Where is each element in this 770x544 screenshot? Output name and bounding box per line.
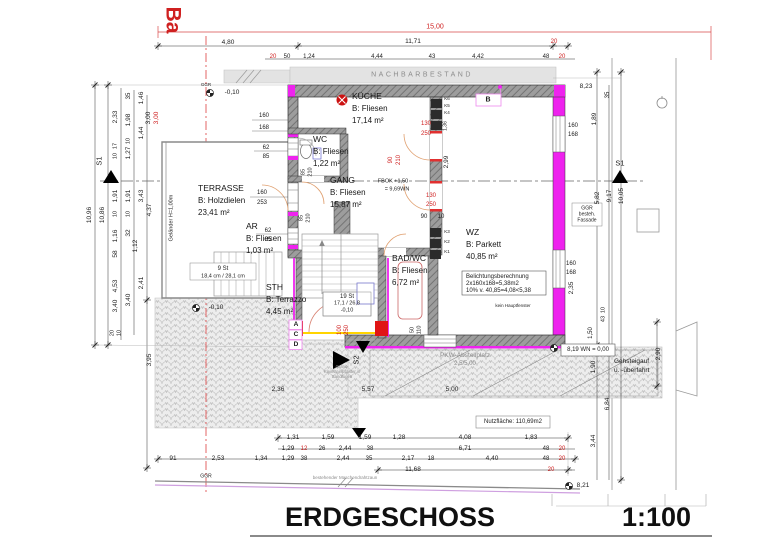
dim-label: 2,41: [139, 277, 146, 290]
dim-label: K3: [444, 230, 450, 235]
dim-label: 4,37: [147, 204, 154, 217]
dim-label: 5,00: [446, 387, 459, 394]
dim-label: 10,05: [619, 188, 626, 204]
dim-label: 168: [259, 125, 269, 131]
dim-label: 250: [344, 325, 350, 335]
dim-label: 50: [284, 54, 291, 60]
dim-label: 91: [169, 456, 176, 463]
dim-label: 168: [566, 270, 576, 276]
dim-label: 3,00: [154, 112, 161, 125]
dim-label: 11,71: [405, 39, 421, 46]
ggr-label: GGR: [200, 475, 211, 480]
dim-label: 10: [126, 138, 132, 144]
section-marker-label: S1: [95, 156, 103, 165]
room-label-kche: KÜCHEB: Fliesen17,14 m²: [352, 90, 388, 128]
dim-label: 38: [301, 456, 308, 462]
dim-label: 10: [126, 211, 132, 217]
dim-label: 10: [601, 307, 607, 313]
dim-label: 2,17: [402, 456, 415, 463]
dim-label: 1,83: [525, 435, 538, 442]
room-name: BAD/WC: [392, 252, 428, 265]
room-finish: B: Terrazzo: [266, 294, 306, 307]
section-marker-label: S2: [352, 355, 360, 364]
dim-label: 85: [263, 154, 270, 160]
dim-label: 168: [568, 132, 578, 138]
dim-label: 20: [548, 467, 555, 473]
dim-label: 3,44: [591, 435, 598, 448]
room-name: GANG: [330, 174, 366, 187]
marker-a-label: A: [294, 322, 299, 329]
parking-label: PKW-Abstellplatz: [440, 353, 490, 360]
dim-label: 8,21: [577, 483, 590, 490]
dim-label: 1,31: [287, 435, 300, 442]
dim-label: 1,29: [282, 446, 295, 453]
dim-label: 9,17: [607, 190, 614, 203]
dim-label: 1,50: [588, 327, 594, 339]
room-finish: B: Fliesen: [246, 233, 282, 246]
dim-label: 1,24: [303, 54, 315, 60]
room-label-ar: ARB: Fliesen1,03 m²: [246, 220, 282, 258]
dim-label: 6,84: [605, 398, 612, 411]
dim-label: 20: [110, 330, 116, 336]
dim-label: 38: [367, 446, 374, 452]
dim-label: 1,34: [255, 456, 268, 463]
room-finish: B: Fliesen: [392, 265, 428, 278]
dim-label: 210: [306, 213, 312, 222]
dim-label: 130: [421, 121, 431, 127]
room-name: KÜCHE: [352, 90, 388, 103]
dim-label: 6,71: [459, 446, 472, 453]
dim-label: 10: [113, 211, 119, 217]
dim-label: 48: [543, 54, 550, 60]
dim-label: 4,08: [459, 435, 472, 442]
dim-label: 3,40: [113, 300, 120, 313]
room-area: 6,72 m²: [392, 277, 428, 290]
dim-label: 48: [543, 446, 550, 452]
dim-label: 20: [270, 54, 277, 60]
section-marker-label: S1: [615, 159, 624, 167]
room-area: 23,41 m²: [198, 207, 245, 220]
dim-label: 35: [605, 92, 611, 99]
marker-b-label: B: [485, 97, 490, 104]
room-finish: B: Parkett: [466, 239, 501, 252]
dim-label: -0,10: [341, 308, 354, 314]
dim-label: 10: [438, 214, 445, 220]
ggr-label: GGR: [201, 83, 211, 88]
dim-label: 2,36: [272, 387, 285, 394]
datum-level-label: 8,19 WN = 0,00: [567, 347, 609, 353]
dim-label: 160: [257, 190, 267, 196]
dim-label: 1,89: [592, 113, 599, 126]
dim-label: 210: [396, 155, 402, 165]
dim-label: 4,80: [222, 40, 235, 47]
dim-label: 1,29: [282, 456, 295, 463]
dim-label: Fassade: [577, 219, 596, 224]
dim-label: 17: [113, 143, 119, 149]
lighting-calc-line: Belichtungsberechnung: [466, 274, 529, 280]
dim-label: 1,59: [322, 435, 335, 442]
dim-label: 90: [388, 157, 394, 164]
dim-label: 18: [428, 456, 435, 462]
dim-label: kein Hauptfenster: [495, 304, 530, 309]
dim-label: 1,36: [444, 121, 449, 131]
room-label-terrasse: TERRASSEB: Holzdielen23,41 m²: [198, 182, 245, 220]
title-bar: ERDGESCHOSS 1:100: [0, 500, 770, 540]
dim-label: K4: [444, 111, 450, 116]
dim-label: 35: [366, 456, 373, 462]
bau-line-label: Ba: [163, 7, 184, 34]
dim-label: 160: [259, 113, 269, 119]
room-finish: B: Fliesen: [330, 187, 366, 200]
dim-label: 1,90: [591, 361, 598, 374]
dim-label: K2: [444, 240, 450, 245]
room-label-wz: WZB: Parkett40,85 m²: [466, 226, 501, 264]
dim-label: 1,27: [126, 147, 133, 160]
dim-label: 3,40: [126, 294, 133, 307]
dim-label: 20: [559, 446, 566, 452]
stair-count-label: 9 St: [218, 266, 229, 272]
room-label-badwc: BAD/WCB: Fliesen6,72 m²: [392, 252, 428, 290]
dim-label: 250: [426, 202, 436, 208]
dim-label: 10,96: [87, 207, 94, 223]
room-area: 17,14 m²: [352, 115, 388, 128]
dim-label: 4,53: [113, 280, 120, 293]
dim-label: 3,95: [147, 354, 154, 367]
dim-label: 8,23: [580, 84, 593, 91]
dim-label: 5,57: [362, 387, 375, 394]
stair-count-label: 19 St: [340, 294, 354, 300]
dim-label: K1: [444, 250, 450, 255]
sidewalk-label: Gehsteigauf: [614, 359, 649, 366]
room-area: 15,87 m²: [330, 199, 366, 212]
room-finish: B: Fliesen: [313, 146, 349, 159]
floorplan-drawing: Ba15,004,8011,712020501,244,44434,424820…: [0, 0, 770, 544]
dim-label: 43: [601, 316, 607, 322]
dim-label: 2,99: [444, 156, 451, 169]
dim-label: 130: [426, 193, 436, 199]
dim-label: 1,91: [113, 190, 120, 203]
dim-label: u. -überfahrt: [614, 368, 649, 375]
dim-label: 3,43: [139, 190, 146, 203]
dim-label: 90: [421, 214, 428, 220]
dim-label: 12: [301, 446, 308, 452]
dim-label: 2,90: [656, 348, 663, 361]
room-name: WC: [313, 133, 349, 146]
dim-label: 2x160x168=5,38m2: [466, 281, 519, 287]
dim-label: 85: [299, 215, 305, 221]
railing-label: Geländer H=1,00m: [169, 195, 175, 242]
dim-label: 1,46: [139, 92, 146, 105]
dim-label: 58: [113, 250, 120, 257]
dim-label: 48: [543, 456, 550, 462]
room-label-sth: STHB: Terrazzo4,45 m²: [266, 281, 306, 319]
dim-label: 5,82: [595, 192, 602, 205]
dim-label: K5: [444, 104, 450, 109]
dim-label: 4,40: [486, 456, 499, 463]
room-finish: B: Holzdielen: [198, 195, 245, 208]
room-area: 40,85 m²: [466, 251, 501, 264]
dim-label: 15,00: [426, 24, 444, 31]
room-name: STH: [266, 281, 306, 294]
level-label: -0,10: [209, 305, 224, 312]
drawing-title: ERDGESCHOSS: [285, 502, 495, 533]
dim-label: 1,98: [126, 114, 133, 127]
dim-label: K6: [444, 97, 450, 102]
room-name: AR: [246, 220, 282, 233]
dim-label: 250: [421, 131, 431, 137]
dim-label: 10% v. 40,85=4,08<5,38: [466, 288, 531, 294]
dim-label: 50: [410, 327, 416, 333]
usable-area-label: Nutzfläche: 110,69m2: [484, 419, 542, 425]
room-area: 1,22 m²: [313, 158, 349, 171]
dim-label: 4,44: [371, 54, 383, 60]
dim-label: 20: [559, 54, 566, 60]
dim-label: 2,35: [569, 282, 576, 295]
room-name: WZ: [466, 226, 501, 239]
marker-c-label: C: [294, 332, 299, 339]
dim-label: 1,91: [126, 190, 133, 203]
dim-label: 253: [257, 200, 267, 206]
fence-label: bestehender Maschendrahtzaun: [313, 476, 378, 481]
annotation-layer: Ba15,004,8011,712020501,244,44434,424820…: [0, 0, 770, 544]
room-area: 4,45 m²: [266, 306, 306, 319]
dim-label: 17,1 / 26,8: [334, 301, 360, 307]
dim-label: 10,86: [100, 207, 107, 223]
drawing-scale: 1:100: [622, 502, 691, 533]
dim-label: 2,44: [337, 456, 350, 463]
dim-label: Sandfugen: [332, 375, 352, 379]
dim-label: 62: [263, 145, 270, 151]
dim-label: 11,68: [405, 467, 421, 474]
floor-level-label: FBOK +1,50: [378, 179, 408, 185]
dim-label: 43: [429, 54, 436, 60]
dim-label: 32: [126, 229, 133, 236]
room-name: TERRASSE: [198, 182, 245, 195]
room-area: 1,03 m²: [246, 245, 282, 258]
dim-label: 2,33: [113, 111, 120, 124]
room-label-gang: GANGB: Fliesen15,87 m²: [330, 174, 366, 212]
dim-label: 10: [113, 153, 119, 159]
dim-label: 35: [126, 93, 132, 100]
dim-label: 1,44: [139, 127, 146, 140]
dim-label: 20: [551, 39, 558, 45]
dim-label: 2,5/5,00: [454, 361, 476, 367]
neighbor-building-label: NACHBARBESTAND: [371, 72, 473, 79]
dim-label: = 9,69WN: [385, 187, 410, 193]
dim-label: 20: [559, 456, 566, 462]
dim-label: 160: [566, 261, 576, 267]
dim-label: 100: [337, 325, 343, 335]
dim-label: 4,42: [472, 54, 484, 60]
dim-label: 110: [417, 326, 423, 335]
dim-label: 2,53: [212, 456, 225, 463]
dim-label: 1,12: [133, 240, 140, 253]
dim-label: 1,59: [359, 435, 372, 442]
dim-label: 85: [301, 169, 307, 175]
room-label-wc: WCB: Fliesen1,22 m²: [313, 133, 349, 171]
dim-label: 2,44: [339, 446, 352, 453]
level-label: -0,10: [225, 90, 240, 97]
dim-label: 3,00: [146, 112, 153, 125]
dim-label: 160: [568, 123, 578, 129]
dim-label: 10: [117, 330, 123, 336]
dim-label: 1,16: [113, 230, 120, 243]
dim-label: 1,28: [393, 435, 406, 442]
dim-label: 18,4 cm / 28,1 cm: [201, 274, 245, 280]
room-finish: B: Fliesen: [352, 103, 388, 116]
marker-d-label: D: [294, 342, 299, 349]
dim-label: 26: [319, 446, 326, 452]
